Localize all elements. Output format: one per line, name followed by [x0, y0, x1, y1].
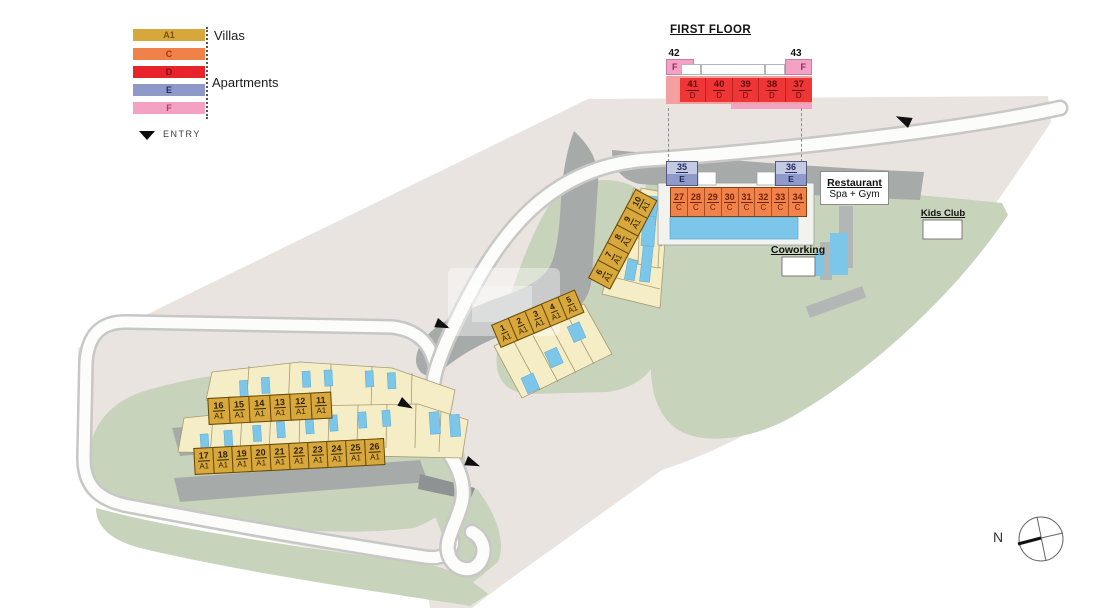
unit-43-number: 43	[786, 48, 806, 59]
unit-41[interactable]: 41D	[680, 78, 706, 102]
unit-number: 40	[713, 80, 726, 91]
unit-32[interactable]: 32C	[755, 188, 772, 216]
unit-30[interactable]: 30C	[722, 188, 739, 216]
legend-code: C	[166, 49, 173, 59]
legend-code: A1	[163, 30, 175, 40]
unit-type: A1	[275, 458, 285, 467]
apartment-row-27-34: 27C28C29C30C31C32C33C34C	[670, 187, 807, 217]
legend-apartments-label: Apartments	[212, 75, 278, 90]
unit-number: 32	[757, 193, 769, 203]
unit-number: 28	[690, 193, 702, 203]
compass-north-label: N	[993, 529, 1003, 545]
unit-39[interactable]: 39D	[733, 78, 759, 102]
unit-type: A1	[567, 304, 579, 315]
unit-type: A1	[294, 457, 304, 466]
legend-code: F	[166, 103, 172, 113]
unit-43[interactable]: F	[785, 59, 812, 75]
unit-type: A1	[296, 408, 306, 417]
unit-23[interactable]: 23A1	[307, 441, 328, 469]
unit-20[interactable]: 20A1	[250, 444, 271, 472]
unit-number: 20	[254, 448, 267, 459]
unit-13[interactable]: 13A1	[269, 394, 292, 422]
unit-type: D	[743, 92, 749, 100]
legend-code: D	[166, 67, 173, 77]
unit-number: 15	[233, 400, 246, 411]
unit-type: C	[727, 204, 733, 212]
first-floor-d-row: 41D40D39D38D37D	[680, 78, 812, 102]
unit-type: C	[710, 204, 716, 212]
unit-type: A1	[640, 200, 652, 212]
unit-15[interactable]: 15A1	[228, 396, 251, 424]
main-pool	[670, 217, 798, 239]
legend-swatch-c: C	[133, 48, 205, 60]
unit-type: D	[796, 92, 802, 100]
unit-type: A1	[517, 325, 529, 336]
callout-dash-left	[668, 108, 669, 162]
unit-21[interactable]: 21A1	[269, 443, 290, 471]
unit-number: 30	[724, 193, 736, 203]
site-plan: A1 C D E F Villas Apartments ENTRY FIRST…	[0, 0, 1114, 608]
unit-type: C	[676, 204, 682, 212]
unit-29[interactable]: 29C	[705, 188, 722, 216]
unit-36[interactable]: 36 E	[775, 161, 807, 186]
unit-type: A1	[256, 459, 266, 468]
first-floor-pink-strip	[731, 104, 812, 109]
unit-type: D	[769, 92, 775, 100]
unit-number: 13	[274, 398, 287, 409]
unit-number: 24	[330, 444, 343, 455]
terrace-notch	[681, 64, 701, 75]
unit-18[interactable]: 18A1	[212, 446, 233, 474]
unit-type: E	[667, 174, 697, 186]
unit-type: C	[795, 204, 801, 212]
unit-38[interactable]: 38D	[759, 78, 785, 102]
unit-type: A1	[622, 236, 634, 248]
unit-24[interactable]: 24A1	[326, 440, 347, 468]
unit-number: 38	[766, 80, 779, 91]
unit-type: A1	[550, 311, 562, 322]
compass-icon	[1018, 517, 1063, 561]
kids-club-box	[923, 220, 962, 239]
legend-swatch-a1: A1	[133, 29, 205, 41]
unit-42-number: 42	[664, 48, 684, 59]
legend-divider	[206, 27, 208, 119]
restaurant-label: Restaurant Spa + Gym	[820, 171, 889, 205]
unit-type: A1	[275, 409, 285, 418]
unit-19[interactable]: 19A1	[231, 445, 252, 473]
unit-type: A1	[332, 455, 342, 464]
legend-swatch-f: F	[133, 102, 205, 114]
coworking-label: Coworking	[771, 244, 825, 256]
unit-number: 21	[273, 447, 286, 458]
unit-number: 23	[311, 445, 324, 456]
unit-type: A1	[603, 271, 615, 283]
unit-11[interactable]: 11A1	[310, 392, 333, 420]
unit-number: 39	[739, 80, 752, 91]
unit-number: 22	[292, 446, 305, 457]
unit-33[interactable]: 33C	[772, 188, 789, 216]
unit-type: A1	[214, 412, 224, 421]
unit-28[interactable]: 28C	[688, 188, 705, 216]
unit-14[interactable]: 14A1	[248, 395, 271, 423]
terrace-notch	[765, 64, 785, 75]
unit-number: 11	[315, 396, 327, 407]
unit-type: A1	[234, 411, 244, 420]
first-floor-slab	[701, 64, 765, 75]
pool	[830, 233, 848, 275]
unit-number: 34	[792, 193, 804, 203]
first-floor-title: FIRST FLOOR	[670, 24, 751, 36]
unit-number: 31	[741, 193, 753, 203]
kids-club-label: Kids Club	[921, 208, 965, 219]
unit-type: A1	[612, 253, 624, 265]
unit-type: C	[761, 204, 767, 212]
unit-number: 36	[776, 162, 806, 174]
unit-37[interactable]: 37D	[786, 78, 812, 102]
unit-35[interactable]: 35 E	[666, 161, 698, 186]
unit-31[interactable]: 31C	[739, 188, 756, 216]
unit-number: 33	[774, 193, 786, 203]
legend-swatch-e: E	[133, 84, 205, 96]
unit-number: 35	[667, 162, 697, 174]
legend-entry-label: ENTRY	[163, 129, 201, 139]
unit-25[interactable]: 25A1	[345, 439, 366, 467]
unit-type: A1	[199, 462, 209, 471]
unit-type: A1	[316, 407, 326, 416]
restaurant-text: Restaurant	[827, 177, 882, 189]
unit-40[interactable]: 40D	[706, 78, 732, 102]
unit-type: D	[690, 92, 696, 100]
legend-villas-label: Villas	[214, 28, 245, 43]
unit-34[interactable]: 34C	[789, 188, 806, 216]
unit-number: 27	[673, 193, 685, 203]
unit-type: E	[776, 174, 806, 186]
unit-type: A1	[237, 460, 247, 469]
unit-type: D	[716, 92, 722, 100]
unit-number: 19	[235, 449, 248, 460]
coworking-box	[782, 257, 815, 276]
unit-16[interactable]: 16A1	[207, 397, 230, 425]
unit-type: A1	[218, 461, 228, 470]
unit-number: 17	[197, 451, 210, 462]
entry-triangle-icon	[139, 131, 155, 140]
unit-number: 25	[349, 443, 362, 454]
unit-type: A1	[501, 332, 513, 343]
unit-27[interactable]: 27C	[671, 188, 688, 216]
unit-number: 26	[368, 442, 381, 453]
unit-type: C	[777, 204, 783, 212]
unit-type: A1	[631, 218, 643, 230]
unit-22[interactable]: 22A1	[288, 442, 309, 470]
unit-type: C	[693, 204, 699, 212]
unit-number: 18	[216, 450, 229, 461]
callout-dash-right	[801, 108, 802, 162]
unit-number: 37	[792, 80, 805, 91]
unit-17[interactable]: 17A1	[193, 447, 214, 475]
legend-code: E	[166, 85, 172, 95]
unit-12[interactable]: 12A1	[289, 393, 312, 421]
legend-swatch-d: D	[133, 66, 205, 78]
unit-26[interactable]: 26A1	[364, 438, 385, 466]
unit-number: 41	[686, 80, 699, 91]
unit-type: A1	[255, 410, 265, 419]
unit-type: A1	[313, 456, 323, 465]
unit-number: 12	[294, 397, 307, 408]
unit-number: 14	[253, 399, 266, 410]
unit-type: A1	[534, 318, 546, 329]
unit-type: A1	[351, 454, 361, 463]
spa-gym-text: Spa + Gym	[829, 189, 879, 200]
unit-type: A1	[370, 453, 380, 462]
unit-type: C	[744, 204, 750, 212]
unit-number: 16	[212, 401, 225, 412]
unit-number: 29	[707, 193, 719, 203]
